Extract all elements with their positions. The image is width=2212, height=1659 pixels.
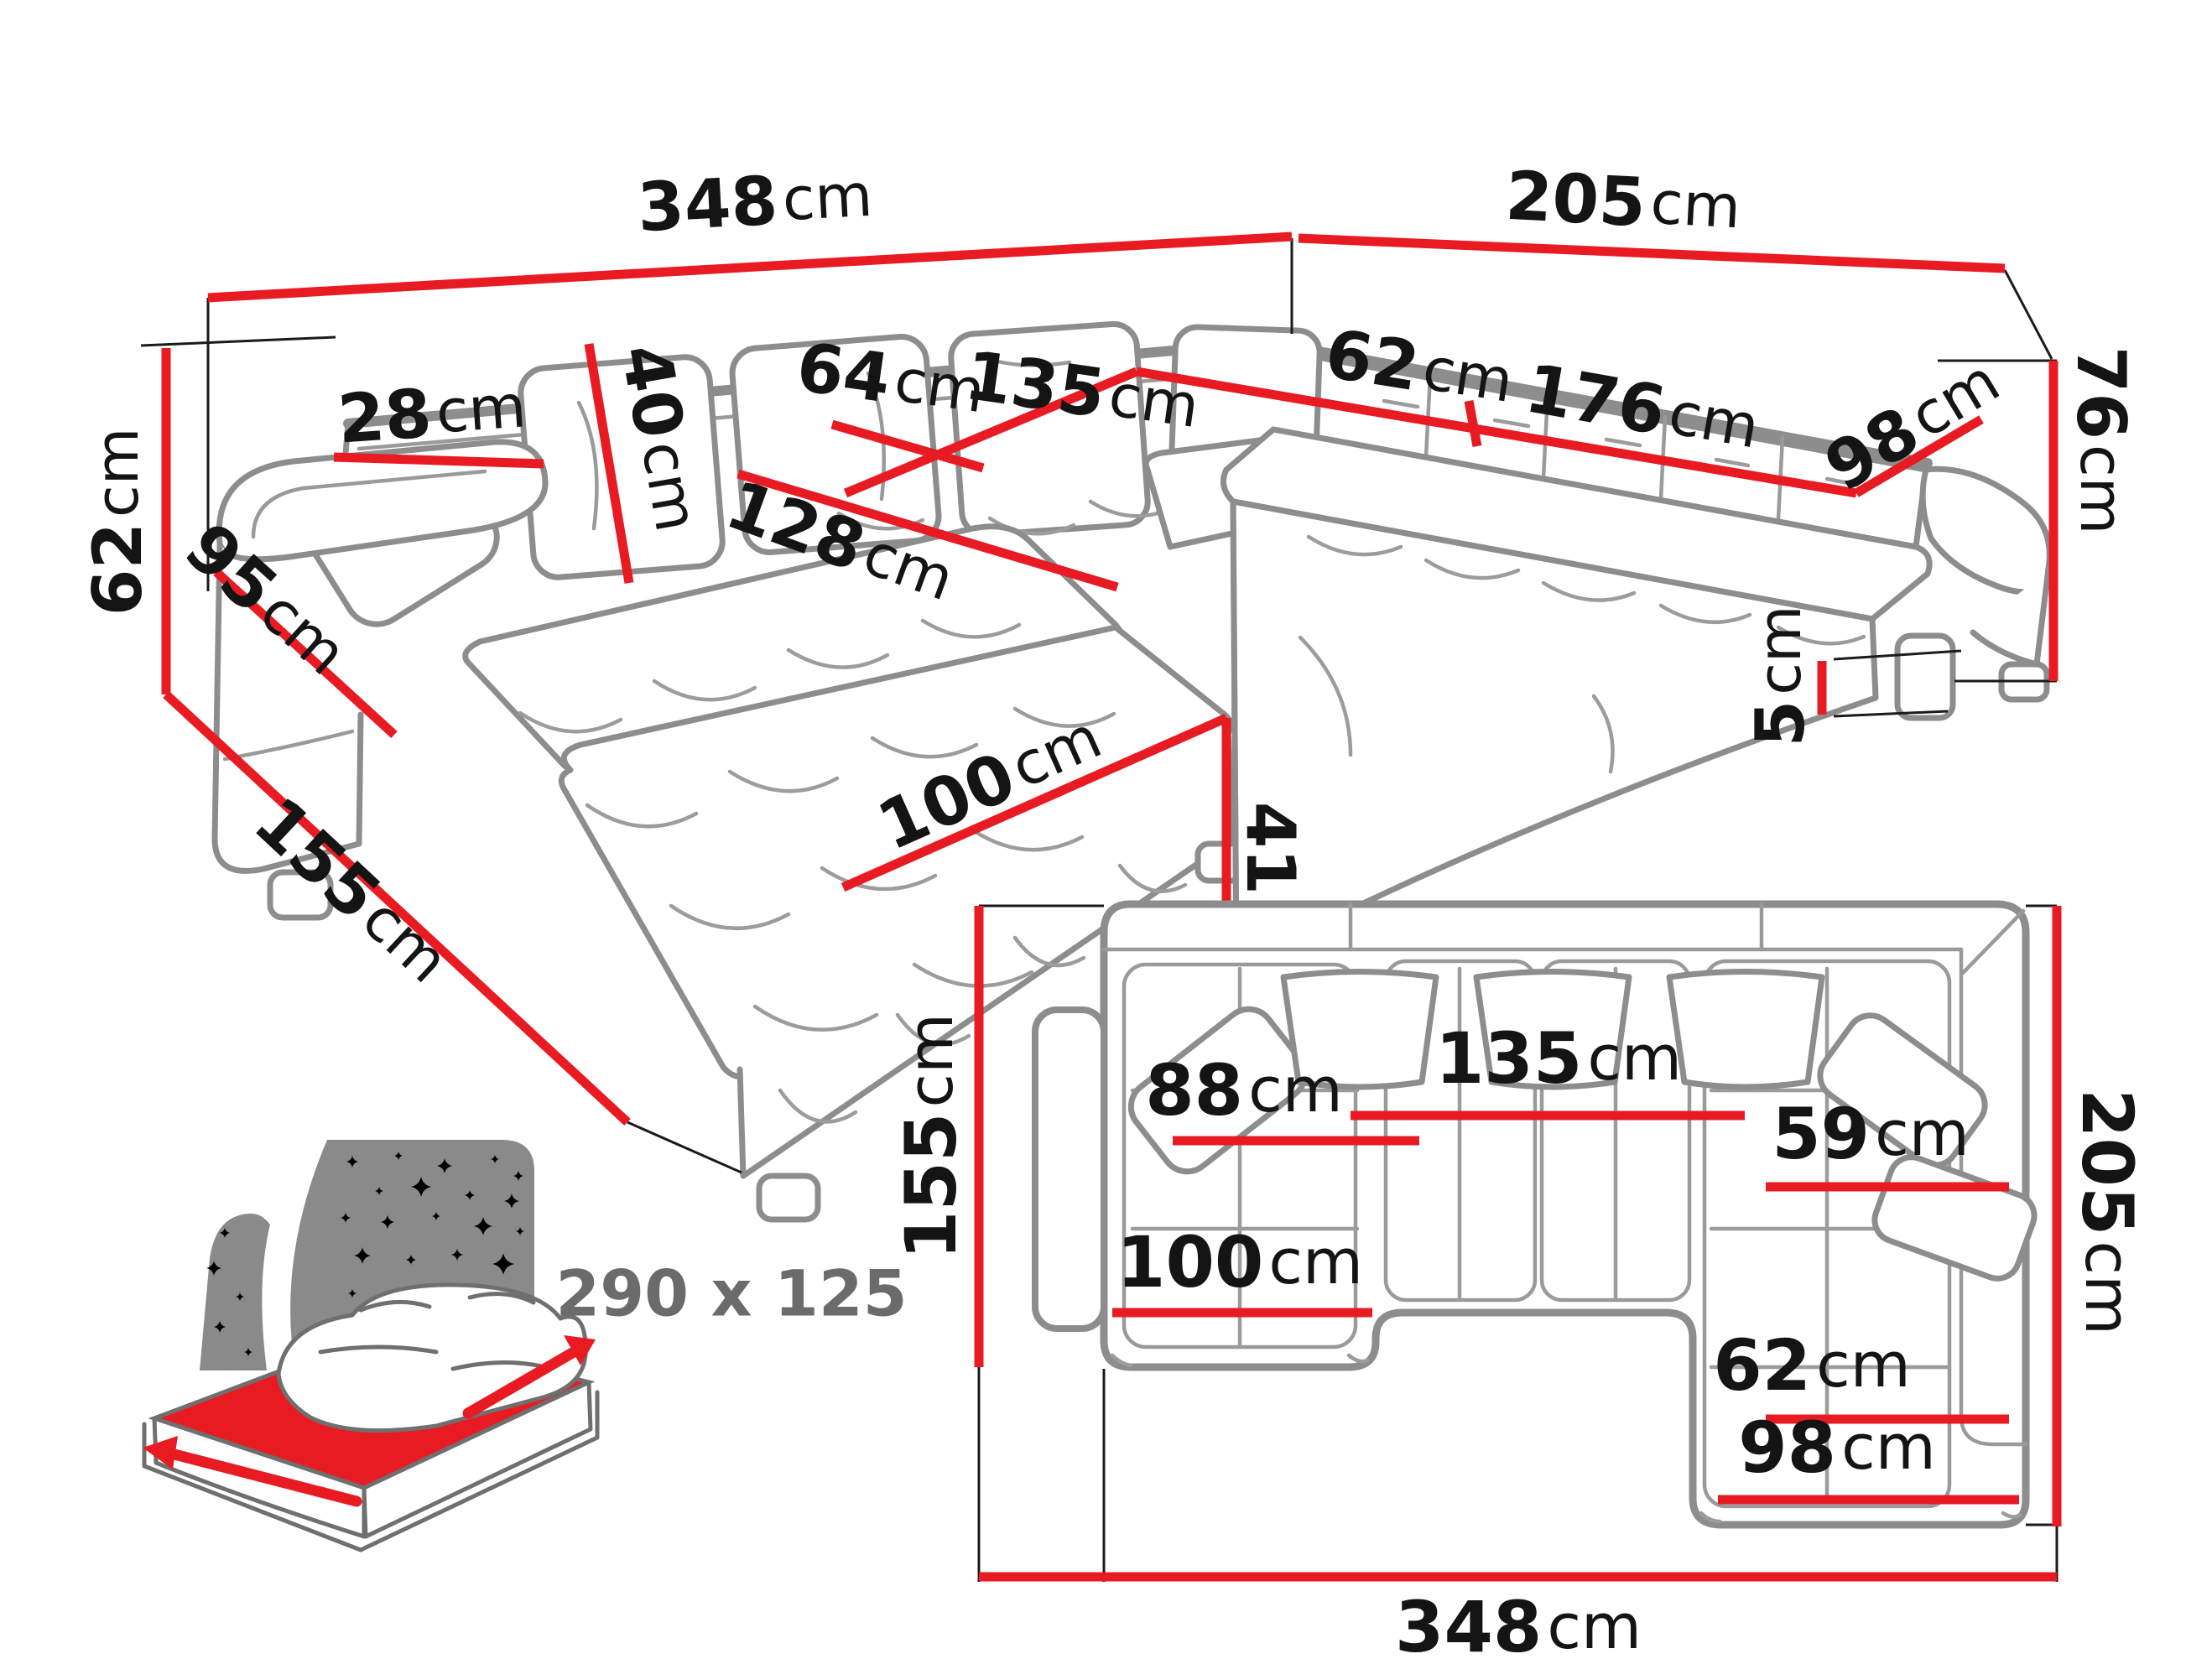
dim-label-back-height: 76cm: [2063, 346, 2141, 535]
dim-label-side-width: 205cm: [1504, 156, 1743, 247]
sofa-top-view-drawing: 155cm 205cm 348cm 88cm 135cm 59cm 62cm 1…: [890, 904, 2148, 1659]
plan-left-armrest: [1035, 1010, 1104, 1329]
dim-label-back-width: 348cm: [636, 156, 875, 247]
dim-label-armrest-height: 62cm: [79, 428, 157, 616]
plan-label-total-width: 348cm: [1395, 1586, 1642, 1659]
dim-line-205: [1299, 238, 2005, 268]
plan-label-right-depth: 205cm: [2066, 1089, 2148, 1335]
dim-line-348: [208, 237, 1292, 298]
sleeping-area-label: 290 x 125: [555, 1256, 907, 1331]
plan-label-left-depth: 155cm: [890, 1013, 972, 1260]
dim-label-leg-height: 5cm: [1741, 606, 1819, 747]
moon-icon: [200, 1214, 270, 1370]
sofa-leg: [1897, 636, 1953, 718]
plan-label-middle-seat: 135cm: [1435, 1017, 1682, 1100]
plan-label-chaise-outer: 100cm: [1116, 1221, 1363, 1303]
sofa-leg: [759, 1176, 818, 1220]
dimension-diagram: 348cm 205cm 76cm 62cm 155cm 95cm 28cm 40…: [0, 0, 2212, 1659]
